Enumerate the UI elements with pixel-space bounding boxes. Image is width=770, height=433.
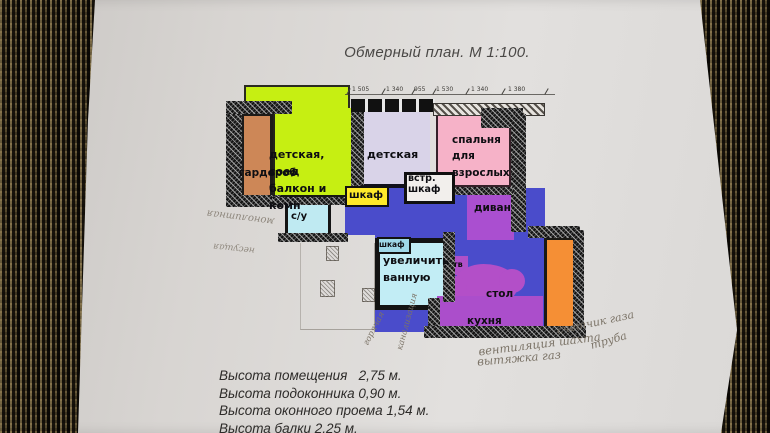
label-kids: детская	[367, 147, 418, 164]
spec-line-beam-height: Высота балки 2,25 м.	[219, 420, 429, 433]
spec-line-window-height: Высота оконного проема 1,54 м.	[219, 402, 429, 420]
specs-block: Высота помещения 2,75 м. Высота подоконн…	[219, 367, 429, 433]
wall-left-outer	[226, 101, 242, 207]
wall-window-top	[351, 99, 435, 112]
vent-shaft-symbol	[362, 288, 375, 302]
wall-bedroom-right	[511, 114, 526, 232]
label-closet-small: шкаф	[379, 239, 405, 250]
wall-top-left	[226, 101, 292, 114]
wall-wc-bottom	[278, 233, 348, 242]
photo-background: Обмерный план. М 1:100. 1 505 1 340 955 …	[0, 0, 770, 433]
label-sofa: диван	[474, 201, 511, 217]
vent-shaft-symbol	[326, 246, 339, 261]
label-bedroom: спальня для взрослых	[452, 132, 510, 181]
wall-green-kids	[351, 99, 364, 195]
label-tv: тв	[453, 259, 463, 271]
label-kitchen: кухня	[467, 314, 502, 330]
vent-shaft-symbol	[320, 280, 335, 297]
dimension-label: 955	[414, 86, 425, 93]
dimension-label: 1 380	[508, 86, 525, 93]
plan-title: Обмерный план. М 1:100.	[332, 44, 542, 61]
spec-line-sill-height: Высота подоконника 0,90 м.	[219, 385, 429, 403]
label-wc: с/у	[291, 209, 307, 224]
label-kids-balcony: детская, соед балкон и комн	[269, 146, 326, 214]
dimension-label: 1 505	[352, 86, 369, 93]
label-table: стол	[486, 287, 513, 303]
spec-line-room-height: Высота помещения 2,75 м.	[219, 367, 429, 385]
dimension-label: 1 340	[471, 86, 488, 93]
dimension-line	[345, 94, 555, 95]
dimension-label: 1 340	[386, 86, 403, 93]
label-bathroom: увеличить ванную	[383, 253, 449, 286]
label-closet-built-in: встр. шкаф	[408, 173, 440, 196]
label-closet-yellow: шкаф	[349, 188, 383, 203]
dimension-label: 1 530	[436, 86, 453, 93]
